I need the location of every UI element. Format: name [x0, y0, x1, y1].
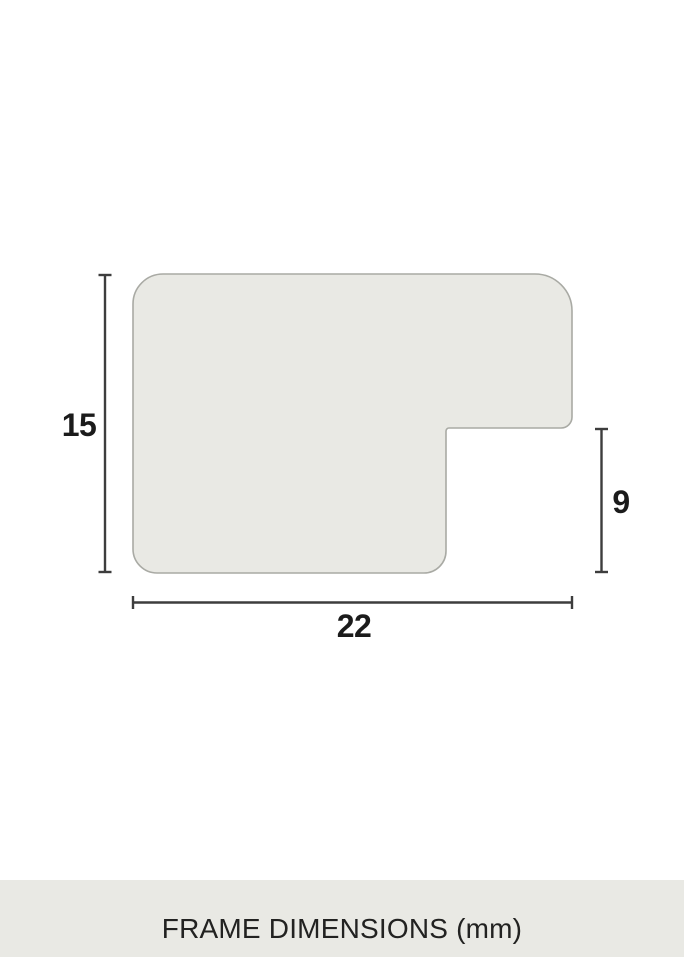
frame-dimensions-diagram: 15 9 22 FRAME DIMENSIONS (mm) [0, 0, 684, 957]
footer-band: FRAME DIMENSIONS (mm) [0, 880, 684, 957]
dimension-label-height: 15 [62, 409, 97, 441]
profile-shape [133, 274, 572, 573]
footer-caption: FRAME DIMENSIONS (mm) [162, 913, 522, 945]
dimension-line-rabbet [595, 429, 608, 572]
dimension-line-height [99, 275, 112, 572]
dimension-label-rabbet: 9 [612, 486, 629, 518]
dimension-label-width: 22 [337, 610, 372, 642]
diagram-canvas [0, 0, 684, 957]
